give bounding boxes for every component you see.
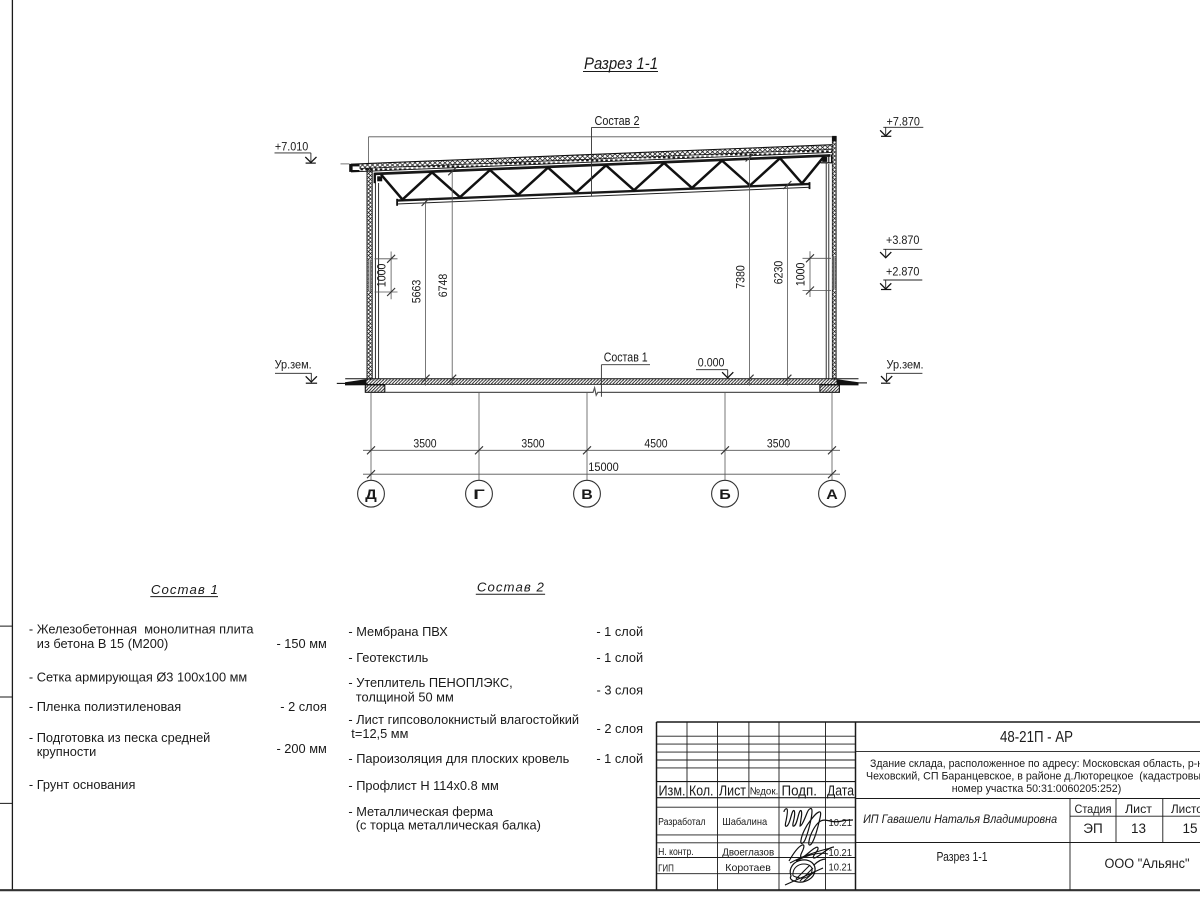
svg-text:- Пленка полиэтиленовая: - Пленка полиэтиленовая <box>29 699 181 714</box>
svg-text:Г: Г <box>473 487 485 502</box>
svg-text:- 3 слоя: - 3 слоя <box>597 683 644 698</box>
svg-text:- 150 мм: - 150 мм <box>276 636 326 651</box>
svg-text:№док.: №док. <box>750 786 779 798</box>
svg-text:Листов: Листов <box>1171 802 1200 816</box>
svg-text:Лист: Лист <box>1125 802 1152 816</box>
svg-text:10.21: 10.21 <box>829 861 853 873</box>
svg-text:15000: 15000 <box>588 460 619 474</box>
svg-text:Лист: Лист <box>719 783 746 799</box>
svg-text:ЭП: ЭП <box>1083 821 1102 836</box>
svg-text:13: 13 <box>1131 821 1146 836</box>
svg-text:Изм.: Изм. <box>659 783 686 799</box>
svg-text:4500: 4500 <box>644 436 667 450</box>
svg-text:- Геотекстиль: - Геотекстиль <box>348 650 428 665</box>
svg-text:Разработал: Разработал <box>658 816 706 828</box>
svg-text:1000: 1000 <box>375 264 389 288</box>
svg-text:- Лист гипсоволокнистый влагос: - Лист гипсоволокнистый влагостойкий <box>348 712 579 727</box>
svg-text:ИП Гавашели Наталья Владимиров: ИП Гавашели Наталья Владимировна <box>863 814 1057 826</box>
svg-text:6230: 6230 <box>771 261 785 285</box>
svg-text:Двоеглазов: Двоеглазов <box>722 846 774 858</box>
svg-text:Шабалина: Шабалина <box>722 816 767 828</box>
svg-text:Чеховский, СП Баранцевское, в: Чеховский, СП Баранцевское, в районе д.Л… <box>866 770 1200 782</box>
svg-text:- Пароизоляция для плоских кро: - Пароизоляция для плоских кровель <box>348 751 569 766</box>
svg-text:10.21: 10.21 <box>829 817 853 829</box>
svg-text:Стадия: Стадия <box>1075 802 1112 816</box>
svg-text:Ур.зем.: Ур.зем. <box>887 359 924 371</box>
svg-text:+7.870: +7.870 <box>887 116 920 128</box>
svg-text:ГИП: ГИП <box>658 863 674 874</box>
svg-text:- 2 слоя: - 2 слоя <box>597 721 644 736</box>
svg-text:А: А <box>826 487 838 502</box>
svg-text:Д: Д <box>365 487 377 502</box>
svg-text:Состав 2: Состав 2 <box>477 580 545 595</box>
svg-text:- Железобетонная монолитная п: - Железобетонная монолитная плита <box>29 622 255 637</box>
svg-text:Состав 1: Состав 1 <box>151 582 218 597</box>
svg-text:5663: 5663 <box>410 280 424 304</box>
svg-text:- Грунт основания: - Грунт основания <box>29 777 136 792</box>
svg-text:крупности: крупности <box>37 744 97 759</box>
svg-text:номер участка 50:31:0060205:25: номер участка 50:31:0060205:252) <box>952 783 1122 795</box>
svg-text:- Сетка армирующая Ø3 100х100: - Сетка армирующая Ø3 100х100 мм <box>29 670 247 685</box>
svg-text:- Профлист Н 114х0.8 мм: - Профлист Н 114х0.8 мм <box>348 778 498 793</box>
svg-text:- 2 слоя: - 2 слоя <box>280 699 327 714</box>
svg-text:В: В <box>581 487 593 502</box>
svg-text:Состав 2: Состав 2 <box>595 113 640 128</box>
svg-text:48-21П - АР: 48-21П - АР <box>1000 729 1073 746</box>
svg-text:Кол.: Кол. <box>689 783 714 799</box>
svg-text:Разрез 1-1: Разрез 1-1 <box>584 55 658 73</box>
svg-text:- Мембрана ПВХ: - Мембрана ПВХ <box>348 624 448 639</box>
svg-text:Б: Б <box>719 487 731 502</box>
svg-text:- 1 слой: - 1 слой <box>596 751 643 766</box>
svg-text:Состав 1: Состав 1 <box>604 349 648 364</box>
svg-text:+7.010: +7.010 <box>275 141 308 153</box>
svg-text:- 200 мм: - 200 мм <box>276 741 326 756</box>
svg-text:Дата: Дата <box>827 783 855 799</box>
svg-text:толщиной 50 мм: толщиной 50 мм <box>356 690 454 705</box>
svg-text:10.21: 10.21 <box>829 847 853 859</box>
svg-text:Н. контр.: Н. контр. <box>658 847 694 858</box>
svg-text:Здание склада, расположенное п: Здание склада, расположенное по адресу: … <box>870 758 1200 770</box>
svg-text:(с торца металлическая балка): (с торца металлическая балка) <box>356 818 541 833</box>
svg-text:Разрез 1-1: Разрез 1-1 <box>937 850 988 864</box>
svg-text:- 1 слой: - 1 слой <box>596 650 643 665</box>
svg-text:0.000: 0.000 <box>698 358 725 370</box>
svg-text:3500: 3500 <box>767 436 790 450</box>
svg-text:- Подготовка из песка средней: - Подготовка из песка средней <box>29 730 210 745</box>
svg-text:15: 15 <box>1182 821 1197 836</box>
svg-text:Ур.зем.: Ур.зем. <box>275 360 312 372</box>
svg-text:6748: 6748 <box>436 274 450 298</box>
svg-text:- Утеплитель ПЕНОПЛЭКС,: - Утеплитель ПЕНОПЛЭКС, <box>348 675 512 690</box>
svg-text:Подп.: Подп. <box>782 783 818 799</box>
svg-text:+3.870: +3.870 <box>886 235 919 247</box>
svg-text:ООО "Альянс": ООО "Альянс" <box>1105 856 1190 871</box>
svg-text:из бетона В 15 (М200): из бетона В 15 (М200) <box>37 636 168 651</box>
svg-text:1000: 1000 <box>794 263 808 287</box>
svg-text:3500: 3500 <box>521 436 544 450</box>
svg-text:+2.870: +2.870 <box>886 266 919 278</box>
svg-text:t=12,5 мм: t=12,5 мм <box>351 726 408 741</box>
svg-text:3500: 3500 <box>413 436 436 450</box>
svg-text:- 1 слой: - 1 слой <box>596 624 643 639</box>
svg-text:Коротаев: Коротаев <box>725 862 771 874</box>
svg-text:7380: 7380 <box>734 265 748 289</box>
